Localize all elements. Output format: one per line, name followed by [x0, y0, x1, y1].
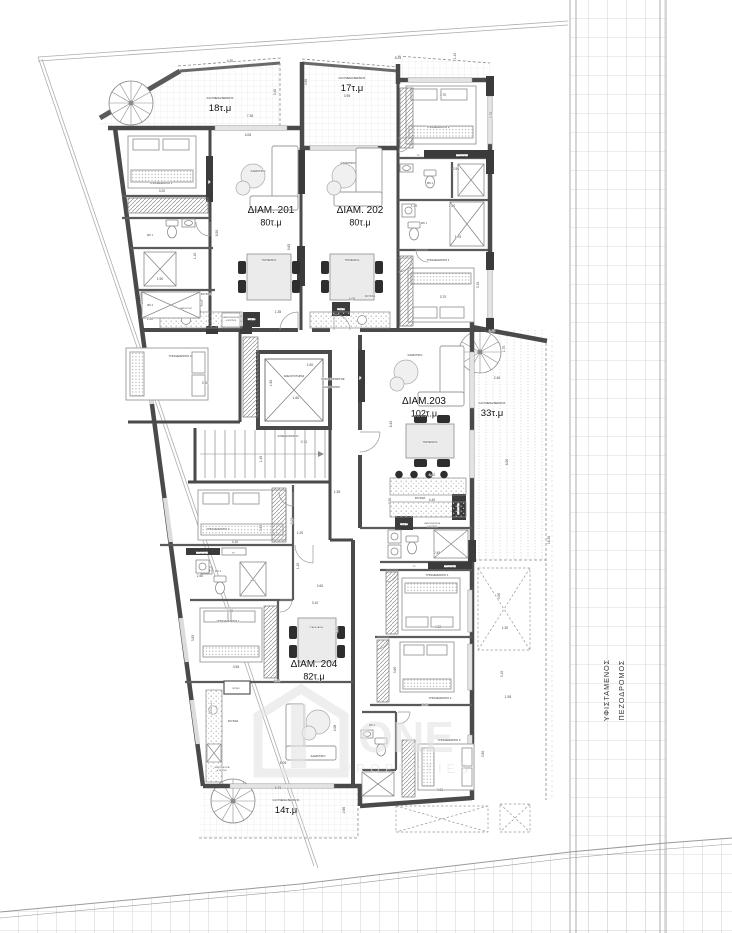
dimension-label: 3.80: [227, 609, 234, 613]
apartment-area: 82τ.μ: [303, 672, 324, 682]
dimension-label: 2.30: [140, 298, 144, 305]
dimension-label: 4.35: [335, 627, 339, 634]
bed: [200, 608, 262, 662]
room-label: ΚΟΥΖΙΝΑ: [228, 720, 239, 723]
dimension-label: 1.95: [505, 695, 512, 699]
room-label: ΥΠΝΟΔΩΜΑΤΙΟ 1: [426, 573, 449, 577]
dimension-label: 3.25: [489, 329, 496, 333]
toilet: [214, 576, 226, 594]
dimension-label: 3.85: [191, 635, 195, 642]
fridge: [395, 516, 413, 530]
dimension-label: 0.70: [301, 440, 308, 444]
watermark-sub: PROPERTIES: [343, 762, 473, 776]
room-label: ΚΑΘΙΣΤΙΚΟ: [251, 169, 267, 173]
room-label: ΝΕΡΟΧΥΤΗΣ: [180, 308, 192, 310]
room-label: ΗΛΕΚΤΡΙΚΗ ΕΣΤΙΑ: [215, 766, 231, 769]
apartment-name: ΔΙΑΜ. 202: [337, 205, 384, 216]
dimension-label: 1.75: [502, 346, 506, 353]
dimension-label: 4.06: [333, 725, 337, 732]
dimension-label: 1.30: [502, 626, 509, 630]
dimension-label: 2.50: [449, 204, 456, 208]
dimension-label: 1.20: [297, 531, 304, 535]
room-label: ΚΑΘΡΕΦΤΗΣ: [444, 565, 457, 568]
dimension-label: 1.45: [259, 456, 263, 463]
room-label: ΥΠΝΟΔΩΜΑΤΙΟ 2: [427, 125, 450, 129]
dimension-label: 1.10: [453, 53, 457, 60]
dimension-label: 16.35: [547, 536, 551, 544]
apartment-name: ΔΙΑΜ. 204: [291, 659, 338, 670]
elevator: [265, 359, 323, 421]
room-label: ΚΑΘΙΣΤΙΚΟ: [311, 754, 327, 758]
room-label: ΥΠΝΟΔΩΜΑΤΙΟ 2: [169, 354, 192, 358]
dimension-label: 8.50: [215, 230, 219, 237]
room-label: ΤΡΑΠΕΖΑΡΙΑ: [262, 259, 277, 262]
room-label: ΤΡΑΠΕΖΑΡΙΑ: [309, 626, 323, 629]
dimension-label: 2.45: [494, 376, 501, 380]
room-label: ΥΠΝΟΔΩΜΑΤΙΟ 2: [429, 696, 452, 700]
room-label: ΚΟΥΖΙΝΑ: [201, 293, 212, 296]
veranda-caption: ΚΑΛΥΜΕΝΗ ΒΕΡΑΝΤΑ: [339, 76, 366, 80]
toilet: [166, 220, 178, 238]
dimension-label: 1.60: [293, 396, 300, 400]
room-label: ΝΕΡΟΧΥΤΗΣ: [458, 503, 460, 515]
apartment-area: 80τ.μ: [260, 218, 281, 228]
dimension-label: 3.20: [388, 498, 392, 505]
floor-plan-drawing: ONE PROPERTIES ΥΦΙΣΤΑΜΕΝΟΣ ΠΕΖΟΔΡΟΜΟΣ ΥΠ…: [0, 0, 732, 933]
room-label: ΥΠΝΟΔΩΜΑΤΙΟ 1: [150, 181, 173, 185]
road-label-line1: ΥΦΙΣΤΑΜΕΝΟΣ: [602, 659, 611, 721]
dimension-label: 3.40: [273, 89, 277, 96]
dimension-label: 4.40: [429, 498, 436, 502]
room-label: WC 2: [427, 182, 434, 185]
dimension-label: 3.10: [500, 671, 504, 678]
dimension-label: 3.50: [481, 751, 485, 758]
dimension-label: 3.50: [497, 593, 501, 600]
floor-plan-page: ONE PROPERTIES ΥΦΙΣΤΑΜΕΝΟΣ ΠΕΖΟΔΡΟΜΟΣ ΥΠ…: [0, 0, 732, 933]
dimension-label: 4.40: [429, 473, 436, 477]
bed: [400, 642, 454, 692]
apartment-name: ΔΙΑΜ. 201: [248, 205, 295, 216]
washing-machine: [196, 560, 209, 573]
dimension-label: 4.06: [245, 133, 252, 137]
dimension-label: 6.60: [274, 679, 281, 683]
veranda-caption: ΚΑΛΥΜΕΝΗ ΒΕΡΑΝΤΑ: [479, 401, 506, 405]
apartment-name: ΔΙΑΜ.203: [402, 396, 446, 407]
toilet: [424, 170, 436, 188]
dimension-label: 1.20: [147, 317, 154, 321]
room-label: ΥΠΝΟΔΩΜΑΤΙΟ 1: [427, 258, 450, 262]
room-label: ΥΠΝΟΔΩΜΑΤΙΟ 3: [438, 738, 461, 742]
bed: [402, 578, 460, 630]
veranda-area: 17τ.μ: [341, 83, 363, 94]
room-label: TV: [413, 566, 416, 568]
room-label: ΚΑΘΙΣΤΙΚΟ: [341, 161, 357, 165]
room-label: WC 2: [369, 724, 376, 727]
dimension-label: 3.70: [489, 112, 493, 119]
dimension-label: 1.35: [334, 490, 341, 494]
dimension-label: 1.10: [193, 253, 197, 260]
room-label: ΥΠΝΟΔΩΜΑΤΙΟ 2: [207, 527, 230, 531]
dimension-label: 4.30: [227, 59, 234, 63]
dimension-label: 4.05: [349, 297, 356, 301]
apartment-area: 102τ.μ: [411, 409, 437, 419]
shower: [458, 164, 484, 196]
veranda-area: 18τ.μ: [209, 103, 231, 114]
road-label-line2: ΠΕΖΟΔΡΟΜΟΣ: [617, 659, 626, 720]
dimension-label: 6.05: [280, 761, 287, 765]
room-label: ΨΥΓΕΙΟ: [232, 688, 240, 690]
room-label: ΥΠΝΟΔΩΜΑΤΙΟ 1: [217, 619, 240, 623]
room-label: ΚΟΥΖΙΝΑ: [415, 497, 426, 500]
room-label: ΤΡΑΠΕΖΑΡΙΑ: [423, 441, 438, 444]
dimension-label: 2.60: [317, 584, 324, 588]
room-label: WC 2: [147, 304, 154, 307]
room-label: ΚΑΘΡΕΦΤΗΣ: [196, 552, 209, 555]
room-label: ΗΛΕΚΤΡΙΚΗ ΕΣΤΙΑ: [223, 316, 240, 319]
dimension-label: 3.60: [422, 703, 429, 707]
dimension-label: 3.60: [393, 667, 397, 674]
dimension-label: 3.55: [233, 665, 240, 669]
room-label: ΚΟΙΝΟΧΡΗΣΤΟΣ: [321, 377, 345, 381]
toilet: [408, 222, 420, 240]
dimension-label: 3.10: [312, 601, 319, 605]
washing-machine: [388, 545, 401, 558]
room-label: ΚΑΘΙΣΤΙΚΟ: [408, 353, 424, 357]
room-label: & ΦΟΥΡΝΟΣ: [217, 769, 227, 772]
dimension-label: 3.70: [440, 93, 447, 97]
dimension-label: 3.90: [202, 381, 209, 385]
tv-unit: [206, 156, 213, 202]
dimension-label: 1.10: [411, 204, 418, 208]
dimension-label: 2.66: [342, 807, 346, 814]
bed: [126, 348, 208, 400]
pedestrian-road-right: [570, 0, 666, 933]
room-label: ΗΛΕΚΤΡΙΚΗ ΕΣΤΙΑ: [424, 522, 441, 525]
dimension-label: 8.45: [389, 421, 393, 428]
room-label: ΑΝΕΛΚΥΣΤΗΡΑΣ: [284, 374, 305, 378]
dimension-label: 1.10: [296, 563, 300, 570]
room-label: WC 1: [215, 570, 222, 573]
kitchen-island: [390, 478, 466, 495]
dimension-label: 3.90: [304, 79, 308, 86]
veranda-area: 33τ.μ: [481, 408, 503, 419]
spiral-stair-east: [459, 331, 501, 373]
dimension-label: 3.15: [290, 518, 294, 525]
dimension-label: 1.90: [157, 277, 164, 281]
dimension-label: 1.75: [455, 235, 462, 239]
dimension-label: 2.50: [197, 574, 204, 578]
dimension-label: 3.60: [437, 788, 444, 792]
room-label: & ΦΟΥΡΝΟΣ: [226, 319, 238, 322]
washing-machine: [388, 530, 401, 543]
dimension-label: 2.50: [453, 167, 460, 171]
pedestrian-road-bottom: [0, 838, 732, 933]
shower: [240, 562, 266, 596]
dimension-label: 4.10: [232, 540, 239, 544]
tv-unit: [358, 350, 365, 402]
room-label: ΨΥΓΕΙΟ: [400, 524, 408, 526]
room-label: ΚΑΘΡΕΦΤΗΣ: [456, 154, 469, 157]
room-label: ντουζ: [250, 580, 255, 582]
room-label: & ΦΟΥΡΝΟΣ: [427, 525, 439, 528]
dimension-label: 9.65: [287, 244, 291, 251]
sink: [182, 219, 195, 227]
dimension-label: 3.70: [440, 295, 447, 299]
dimension-label: 4.22: [435, 625, 442, 629]
room-label: ΨΥΓΕΙΟ: [248, 319, 256, 321]
dimension-label: 1.35: [275, 310, 282, 314]
dimension-label: 3.20: [159, 189, 166, 193]
room-label: ΔΙΑΔΡΟΜΟΣ: [322, 385, 340, 389]
toilet: [406, 536, 418, 554]
room-label: ΝΕΡΟΧΥΤΗΣ: [211, 702, 213, 714]
dimension-label: 8.25: [395, 56, 402, 60]
sink: [400, 164, 413, 172]
dimension-label: 7.35: [247, 114, 254, 118]
shower: [450, 202, 484, 246]
staircase: [200, 430, 325, 478]
dimension-label: 1.60: [307, 363, 314, 367]
dimension-label: 3.15: [476, 282, 480, 289]
dimension-label: 2.45: [434, 551, 441, 555]
veranda-caption: ΚΑΛΥΜΕΝΗ ΒΕΡΑΝΤΑ: [273, 798, 300, 802]
room-label: WC 1: [421, 222, 428, 225]
mirror-strip: [424, 150, 486, 158]
room-label: ΚΛΙΜΑΚΟΣΤΑΣΙΟ: [278, 434, 299, 438]
dimension-label: 6.35: [275, 786, 282, 790]
room-label: ΨΥΓΕΙΟ: [337, 309, 345, 311]
dimension-label: 3.95: [344, 94, 351, 98]
spiral-stair-northwest: [109, 81, 153, 125]
dimension-label: 8.90: [505, 459, 509, 466]
room-label: ΚΟΥΖΙΝΑ: [365, 295, 376, 298]
veranda-area: 14τ.μ: [275, 805, 297, 816]
apartment-area: 80τ.μ: [349, 218, 370, 228]
dimension-label: 3.90: [259, 525, 263, 532]
veranda-caption: ΚΑΛΥΜΕΝΗ ΒΕΡΑΝΤΑ: [207, 96, 234, 100]
room-label: TV: [417, 155, 420, 157]
dimension-label: 1.50: [269, 380, 273, 387]
room-label: ΤΡΑΠΕΖΑΡΙΑ: [345, 259, 360, 262]
room-label: WC 1: [147, 234, 154, 237]
